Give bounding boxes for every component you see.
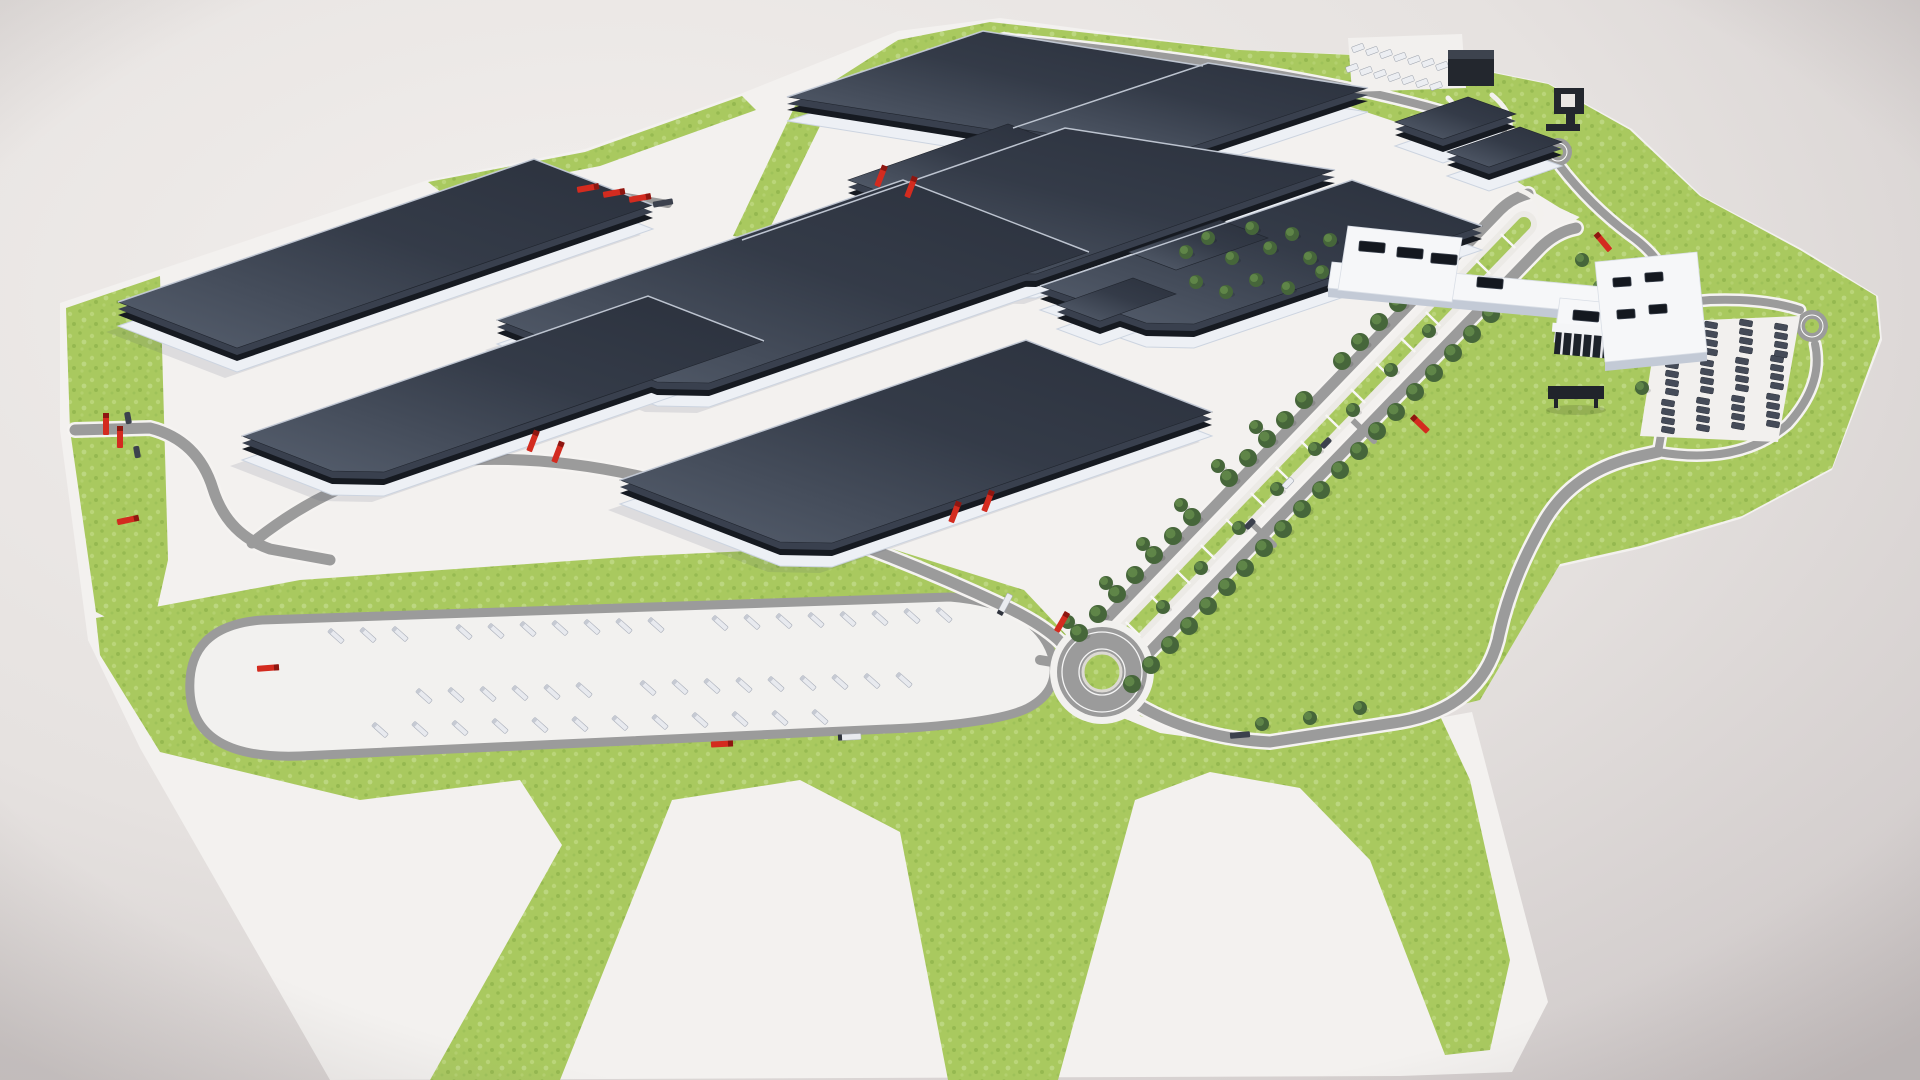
rendering-canvas: Aerial 3D architectural rendering of a l…	[0, 0, 1920, 1080]
rendering-stage: Aerial 3D architectural rendering of a l…	[0, 0, 1920, 1080]
vignette-overlay	[0, 0, 1920, 1080]
